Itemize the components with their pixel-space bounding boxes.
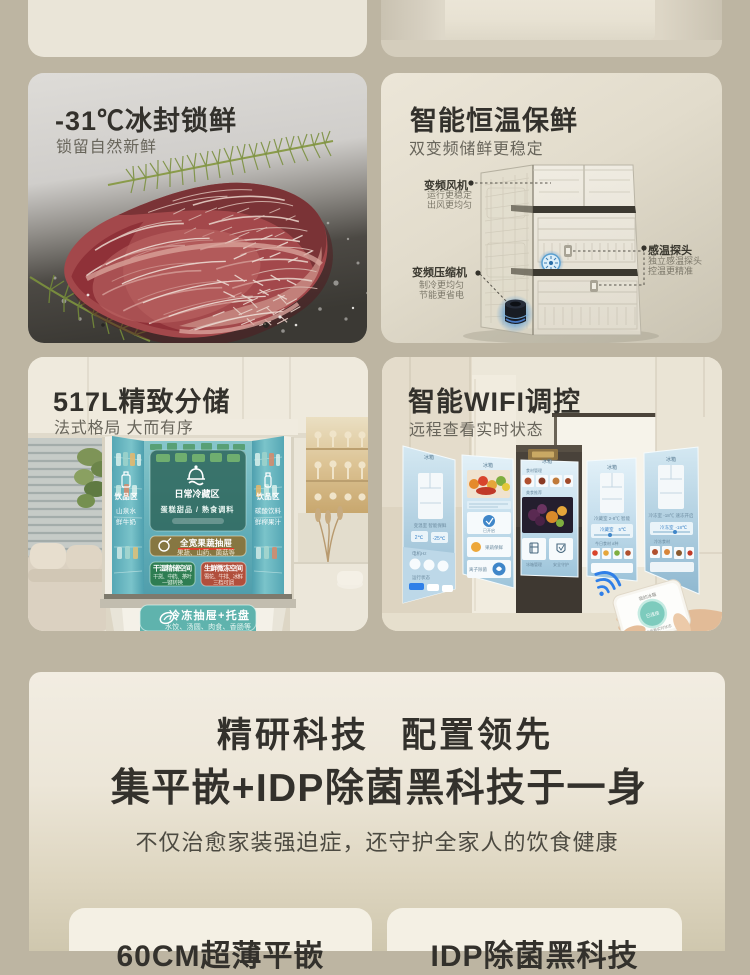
svg-text:-18℃: -18℃ (675, 525, 688, 530)
svg-text:一键转换: 一键转换 (162, 579, 183, 587)
svg-text:冰箱: 冰箱 (666, 456, 676, 463)
svg-text:2℃: 2℃ (415, 535, 424, 541)
svg-text:三档可调: 三档可调 (213, 579, 234, 587)
svg-text:日常冷藏区: 日常冷藏区 (175, 488, 220, 499)
svg-text:冰箱: 冰箱 (424, 454, 434, 461)
svg-text:食材管理: 食材管理 (526, 467, 542, 473)
svg-text:雪花、牛排、冰鲜: 雪花、牛排、冰鲜 (204, 573, 243, 581)
svg-text:已开启: 已开启 (483, 527, 495, 533)
svg-text:冰箱: 冰箱 (607, 464, 617, 471)
svg-text:美食推荐: 美食推荐 (526, 489, 542, 495)
svg-text:冷藏室: 冷藏室 (600, 526, 614, 533)
svg-text:碳酸饮料: 碳酸饮料 (255, 506, 282, 515)
svg-text:干货、中药、茶叶: 干货、中药、茶叶 (153, 573, 192, 581)
svg-text:电机Hz: 电机Hz (412, 550, 427, 557)
svg-text:安全守护: 安全守护 (553, 561, 569, 567)
svg-text:冰箱管理: 冰箱管理 (526, 561, 542, 567)
svg-text:全宽果蔬抽屉: 全宽果蔬抽屉 (179, 538, 232, 548)
svg-text:今日食材 8种: 今日食材 8种 (595, 540, 618, 546)
svg-text:蛋糕甜品 / 熟食调料: 蛋糕甜品 / 熟食调料 (161, 505, 235, 514)
svg-text:冷冻食材: 冷冻食材 (654, 538, 670, 544)
svg-text:鲜榨果汁: 鲜榨果汁 (255, 517, 282, 526)
svg-text:变温室 智能保鲜: 变温室 智能保鲜 (414, 522, 447, 529)
svg-text:冰箱: 冰箱 (483, 462, 493, 469)
svg-text:水饺、汤圆、肉食、香肠等: 水饺、汤圆、肉食、香肠等 (165, 622, 251, 631)
svg-text:生鲜微冻空间: 生鲜微冻空间 (204, 564, 243, 573)
svg-text:-25℃: -25℃ (433, 536, 446, 542)
svg-text:冷藏室 2-8℃ 智能: 冷藏室 2-8℃ 智能 (594, 515, 631, 522)
svg-text:果蔬保鲜: 果蔬保鲜 (485, 544, 503, 551)
svg-text:离子除菌: 离子除菌 (469, 566, 487, 573)
svg-text:山泉水: 山泉水 (116, 506, 137, 515)
svg-text:鲜牛奶: 鲜牛奶 (116, 517, 137, 526)
svg-text:冰箱: 冰箱 (542, 458, 552, 465)
svg-text:饮品区: 饮品区 (256, 491, 281, 501)
svg-text:冷冻室 -18℃ 速冻开启: 冷冻室 -18℃ 速冻开启 (648, 512, 693, 519)
svg-text:冷冻室: 冷冻室 (660, 524, 674, 531)
svg-text:果蔬、山药、菌菇等: 果蔬、山药、菌菇等 (177, 548, 236, 557)
svg-text:运行状态: 运行状态 (412, 574, 430, 581)
svg-text:5℃: 5℃ (618, 527, 627, 532)
svg-text:饮品区: 饮品区 (114, 491, 139, 501)
svg-text:干湿精储空间: 干湿精储空间 (153, 564, 192, 573)
